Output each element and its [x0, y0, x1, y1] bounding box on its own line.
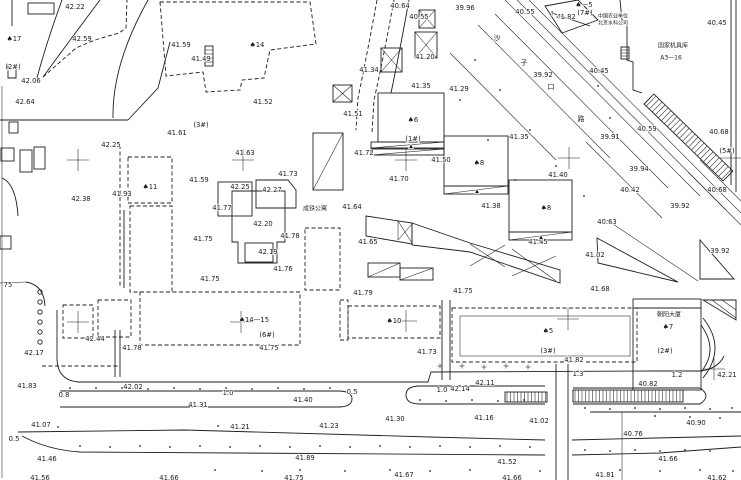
tree-dot: [659, 408, 661, 410]
elevation-label: 40.68: [709, 128, 728, 136]
tree-dot: [389, 469, 391, 471]
building-number-label: ♠10: [387, 317, 402, 325]
fence-circle: [38, 330, 42, 334]
elevation-label: 40.90: [686, 419, 705, 427]
wing-band: [368, 263, 400, 277]
elevation-label: 41.50: [431, 156, 450, 164]
retaining-wall-strip: [658, 108, 668, 118]
bank-hatch: [712, 300, 736, 318]
elevation-label: 41.79: [353, 289, 372, 297]
place-name-label: 口: [548, 83, 555, 91]
elevation-label: 41.89: [295, 454, 314, 462]
tree-dot: [684, 407, 686, 409]
tree-dot: [529, 129, 531, 131]
elevation-label: 40.82: [638, 380, 657, 388]
tree-dot: [214, 469, 216, 471]
building-number-label: ♠7: [663, 323, 673, 331]
tree-dot: [529, 446, 531, 448]
elevation-label: 40.42: [620, 186, 639, 194]
tree-dot: [659, 450, 661, 452]
tree-dot: [329, 387, 331, 389]
tree-dot: [349, 446, 351, 448]
map-annotation: (2#): [5, 63, 21, 71]
tree-dot: [499, 89, 501, 91]
tree-dot: [634, 407, 636, 409]
retaining-wall-strip: [673, 122, 683, 132]
elevation-label: 41.23: [319, 422, 338, 430]
tree-dot: [584, 449, 586, 451]
map-annotation: (3#): [540, 347, 556, 355]
elevation-label: 41.45: [528, 238, 547, 246]
elevation-label: 40.59: [637, 125, 656, 133]
elevation-label: 39.92: [533, 71, 552, 79]
elevation-label: 41.66: [658, 455, 677, 463]
elevation-label: 40.68: [707, 186, 726, 194]
building-number-label: ♠8: [541, 204, 551, 212]
retaining-wall-strip: [652, 102, 662, 112]
elevation-label: 41.64: [342, 203, 361, 211]
tree-dot: [344, 470, 346, 472]
median-island: [406, 386, 545, 404]
place-name-label: 子: [521, 59, 528, 67]
elevation-label: 39.96: [455, 4, 474, 12]
shed-box: [0, 236, 11, 249]
roof-box: [28, 3, 54, 14]
map-annotation: (3#): [193, 121, 209, 129]
retaining-wall-strip: [709, 158, 719, 168]
median-wall: [573, 390, 683, 402]
tree-dot: [539, 470, 541, 472]
elevation-label: 42.38: [71, 195, 90, 203]
retaining-wall-strip: [685, 134, 695, 144]
elevation-label: 41.59: [171, 41, 190, 49]
elevation-label: 41.35: [509, 133, 528, 141]
elevation-label: 40.76: [623, 430, 642, 438]
elevation-label: 41.40: [293, 396, 312, 404]
elevation-label: 39.92: [710, 247, 729, 255]
elevation-label: 40.45: [707, 19, 726, 27]
tree-dot: [57, 426, 59, 428]
wing-brace: [512, 249, 556, 281]
place-name-label: 中国农业单位: [598, 13, 628, 20]
map-annotation: ▲: [409, 144, 413, 150]
tree-dot: [555, 165, 557, 167]
slope-curve: [37, 0, 62, 78]
tree-dot: [173, 387, 175, 389]
building-number-label: ♠17: [7, 35, 22, 43]
elevation-label: 1.2: [672, 371, 683, 379]
tree-dot: [619, 469, 621, 471]
retaining-wall-strip: [703, 152, 713, 162]
elevation-label: 42.06: [21, 77, 40, 85]
map-annotation: ▲: [539, 235, 543, 241]
tree-dot: [79, 445, 81, 447]
tree-dot: [409, 446, 411, 448]
wing-band: [400, 268, 433, 280]
elevation-label: 42.19: [258, 248, 277, 256]
elevation-label: 42.21: [717, 371, 736, 379]
elevation-label: 41.70: [389, 175, 408, 183]
apartment-annex: [305, 228, 340, 290]
kerb-line: [78, 371, 658, 382]
place-name-label: 路: [578, 114, 585, 123]
tree-dot: [514, 179, 516, 181]
elevation-label: 41.65: [358, 238, 377, 246]
tree-dot: [709, 408, 711, 410]
elevation-label: 41.40: [548, 171, 567, 179]
fence-circle: [38, 310, 42, 314]
building-11-outline: [128, 157, 172, 203]
elevation-label: 41.61: [167, 129, 186, 137]
place-name-label: 成铁公寓: [303, 205, 327, 213]
tree-dot: [445, 400, 447, 402]
map-annotation: ↑: [556, 14, 561, 21]
elevation-label: 1.0: [437, 386, 448, 394]
building-number-label: ♠11: [143, 183, 158, 191]
bank-triangle: [703, 300, 736, 320]
elevation-label: 41.83: [17, 382, 36, 390]
building-number-label: ♠14: [250, 41, 265, 49]
survey-drawing: 42.22♠1742.59(2#)42.0642.6441.5941.49♠14…: [0, 0, 741, 480]
elevation-label: 41.02: [529, 417, 548, 425]
elevation-label: 40.64: [390, 2, 409, 10]
map-annotation: (6#): [259, 331, 275, 339]
tree-dot: [487, 139, 489, 141]
tree-dot: [199, 445, 201, 447]
kerb-line: [572, 436, 741, 440]
road-edge: [391, 0, 409, 93]
retaining-wall-strip: [661, 111, 671, 121]
retaining-wall-strip: [670, 120, 680, 130]
elevation-label: 41.51: [343, 110, 362, 118]
bank-triangle: [700, 240, 734, 279]
shed-box: [1, 148, 14, 161]
tree-dot: [471, 399, 473, 401]
elevation-label: 41.49: [191, 55, 210, 63]
elevation-label: 41.68: [590, 285, 609, 293]
retaining-wall-strip: [715, 164, 725, 174]
map-annotation: (1#): [405, 135, 421, 143]
tree-dot: [419, 399, 421, 401]
elevation-label: 41.62: [707, 474, 726, 480]
bank-edge: [128, 42, 170, 120]
retaining-wall-strip: [682, 131, 692, 141]
retaining-wall-strip: [667, 117, 677, 127]
wing-brace: [398, 224, 412, 240]
elevation-label: 42.44: [85, 335, 104, 343]
kerb-line: [572, 447, 741, 455]
tree-dot: [251, 388, 253, 390]
elevation-label: 42.02: [123, 383, 142, 391]
elevation-label: 42.25: [101, 141, 120, 149]
place-name-label: 沙: [494, 34, 501, 42]
tree-dot: [719, 417, 721, 419]
elevation-label: 41.38: [481, 202, 500, 210]
elevation-label: 41.29: [449, 85, 468, 93]
elevation-label: 41.31: [188, 401, 207, 409]
map-annotation: A3—16: [660, 55, 682, 62]
tree-dot: [277, 387, 279, 389]
tree-dot: [289, 446, 291, 448]
elevation-label: 1.3: [573, 370, 584, 378]
median-wall: [505, 392, 547, 402]
tree-dot: [609, 117, 611, 119]
place-name-label: 朝阳大厦: [657, 311, 681, 319]
elevation-label: 41.75: [259, 344, 278, 352]
elevation-label: 42.22: [65, 3, 84, 11]
elevation-label: 41.73: [278, 170, 297, 178]
tree-dot: [699, 469, 701, 471]
tree-dot: [139, 445, 141, 447]
retaining-wall-strip: [646, 96, 656, 106]
tree-dot: [474, 59, 476, 61]
bank-hatch: [722, 300, 736, 310]
elevation-label: 42.14: [450, 385, 469, 393]
place-name-label: 国家机具库: [658, 42, 688, 50]
kerb-corner: [57, 360, 78, 382]
map-annotation: (2#): [657, 347, 673, 355]
retaining-wall-strip: [697, 146, 707, 156]
retaining-wall-strip: [649, 99, 659, 109]
tree-dot: [689, 416, 691, 418]
elevation-label: 42.25: [230, 183, 249, 191]
elevation-label: 41.77: [212, 204, 231, 212]
elevation-label: 41.75: [284, 474, 303, 480]
fence-circle: [38, 320, 42, 324]
elevation-label: 42.64: [15, 98, 34, 106]
elevation-label: 41.78: [280, 232, 299, 240]
map-annotation: (5#): [719, 147, 735, 155]
wing-brace: [512, 256, 556, 276]
elevation-label: 41.34: [359, 66, 378, 74]
elevation-label: 41.75: [193, 235, 212, 243]
elevation-label: 0.8: [59, 391, 70, 399]
site-plan-map: 42.22♠1742.59(2#)42.0642.6441.5941.49♠14…: [0, 0, 741, 480]
elevation-label: 41.63: [235, 149, 254, 157]
retaining-wall-strip: [679, 128, 689, 138]
retaining-wall-strip: [718, 166, 728, 176]
elevation-label: 41.82: [564, 356, 583, 364]
tree-dot: [69, 387, 71, 389]
tree-dot: [229, 446, 231, 448]
tree-dot: [217, 425, 219, 427]
elevation-label: 41.81: [595, 471, 614, 479]
building-4227: [256, 180, 296, 208]
elevation-label: 41.76: [273, 265, 292, 273]
rail-line: [495, 14, 668, 188]
elevation-label: 75: [4, 281, 13, 289]
tree-dot: [497, 400, 499, 402]
elevation-label: 41.52: [253, 98, 272, 106]
tree-dot: [609, 450, 611, 452]
building-10-annex: [340, 300, 348, 340]
elevation-label: 40.45: [589, 67, 608, 75]
retaining-wall-strip: [700, 149, 710, 159]
elevation-label: 0.5: [347, 388, 358, 396]
tree-dot: [299, 469, 301, 471]
elevation-label: 41.67: [394, 471, 413, 479]
building-number-label: ♠8: [474, 159, 484, 167]
elevation-label: 39.92: [670, 202, 689, 210]
elevation-label: 40.55: [409, 13, 428, 21]
shed-box: [20, 150, 32, 172]
rail-line: [586, 142, 662, 218]
tree-dot: [319, 445, 321, 447]
rail-line: [700, 160, 741, 201]
tree-dot: [583, 195, 585, 197]
kerb-line: [18, 430, 545, 440]
fence-circle: [38, 300, 42, 304]
elevation-label: 41.66: [502, 474, 521, 480]
rail-line: [505, 0, 700, 196]
elevation-label: 41.66: [159, 474, 178, 480]
elevation-label: 41.46: [37, 455, 56, 463]
map-annotation: ▲: [475, 189, 479, 195]
place-name-label: 北京水科公司: [598, 20, 628, 27]
slope-curve: [113, 0, 148, 118]
rail-line: [478, 25, 610, 158]
elevation-label: 41.21: [230, 423, 249, 431]
fence-circle: [38, 340, 42, 344]
tree-dot: [259, 445, 261, 447]
elevation-label: 39.91: [600, 133, 619, 141]
tree-dot: [469, 446, 471, 448]
kerb-corner: [22, 436, 545, 455]
rail-line: [450, 53, 556, 160]
tree-dot: [523, 399, 525, 401]
elevation-label: 41.75: [200, 275, 219, 283]
building-11-annex: [130, 206, 172, 292]
elevation-label: 42.20: [253, 220, 272, 228]
rail-line: [529, 0, 741, 213]
wing-triangle: [597, 238, 678, 282]
tree-dot: [654, 415, 656, 417]
elevation-label: 40.55: [515, 8, 534, 16]
retaining-wall-strip: [676, 125, 686, 135]
elevation-label: 41.02: [585, 251, 604, 259]
elevation-label: 42.27: [262, 186, 281, 194]
building-number-label: ♠6: [408, 116, 418, 124]
tree-dot: [379, 445, 381, 447]
tree-dot: [109, 446, 111, 448]
retaining-wall-strip: [664, 114, 674, 124]
tree-dot: [634, 449, 636, 451]
retaining-wall-strip: [691, 140, 701, 150]
building-1415-outline: [140, 292, 300, 345]
building-6-steps: [371, 149, 444, 155]
rail-line: [688, 172, 741, 225]
retaining-wall-strip: [712, 161, 722, 171]
tree-dot: [429, 470, 431, 472]
elevation-label: 41.73: [417, 348, 436, 356]
elevation-label: 40.63: [597, 218, 616, 226]
elevation-label: 41.16: [474, 414, 493, 422]
elevation-label: 42.11: [475, 379, 494, 387]
tree-dot: [261, 470, 263, 472]
elevation-label: 41.75: [453, 287, 472, 295]
kerb-curve: [2, 178, 18, 216]
shed-box: [34, 147, 45, 169]
tree-dot: [584, 407, 586, 409]
map-annotation: (7#): [577, 9, 593, 17]
elevation-label: 42.59: [72, 35, 91, 43]
tree-dot: [597, 85, 599, 87]
building-number-label: ♠—5: [575, 1, 592, 9]
tree-dot: [169, 446, 171, 448]
tree-dot: [609, 408, 611, 410]
elevation-label: 41.52: [497, 458, 516, 466]
retaining-wall-strip: [694, 143, 704, 153]
elevation-label: 41.07: [31, 421, 50, 429]
elevation-label: 0.5: [9, 435, 20, 443]
tree-dot: [469, 469, 471, 471]
tower-entry-band: [633, 299, 701, 308]
apartment-block: [313, 133, 343, 190]
tree-dot: [459, 99, 461, 101]
elevation-label: 41.78: [122, 344, 141, 352]
retaining-wall-strip: [706, 155, 716, 165]
elevation-label: 41.59: [189, 176, 208, 184]
map-annotation: ↑: [549, 11, 554, 18]
elevation-label: 41.93: [112, 190, 131, 198]
elevation-label: 42.17: [24, 349, 43, 357]
retaining-wall-strip: [688, 137, 698, 147]
tree-dot: [439, 445, 441, 447]
elevation-label: 41.35: [411, 82, 430, 90]
tree-dot: [499, 445, 501, 447]
tower-apse: [701, 325, 710, 372]
elevation-label: 41.20: [415, 53, 434, 61]
elevation-label: 41.72: [354, 149, 373, 157]
elevation-label: 39.94: [629, 165, 648, 173]
tree-dot: [303, 388, 305, 390]
elevation-label: 41.56: [30, 474, 49, 480]
building-1415-annex: [98, 300, 131, 337]
elevation-label: 41.30: [385, 415, 404, 423]
retaining-wall-strip: [655, 105, 665, 115]
tree-dot: [199, 388, 201, 390]
tree-dot: [731, 407, 733, 409]
tree-dot: [659, 470, 661, 472]
tree-dot: [95, 387, 97, 389]
step-box: [9, 122, 18, 133]
tree-dot: [709, 450, 711, 452]
tree-dot: [684, 449, 686, 451]
tree-dot: [147, 388, 149, 390]
building-number-label: ♠5: [543, 327, 553, 335]
elevation-label: 1.0: [223, 389, 234, 397]
building-number-label: ♠14—15: [239, 316, 269, 324]
tree-dot: [732, 470, 734, 472]
